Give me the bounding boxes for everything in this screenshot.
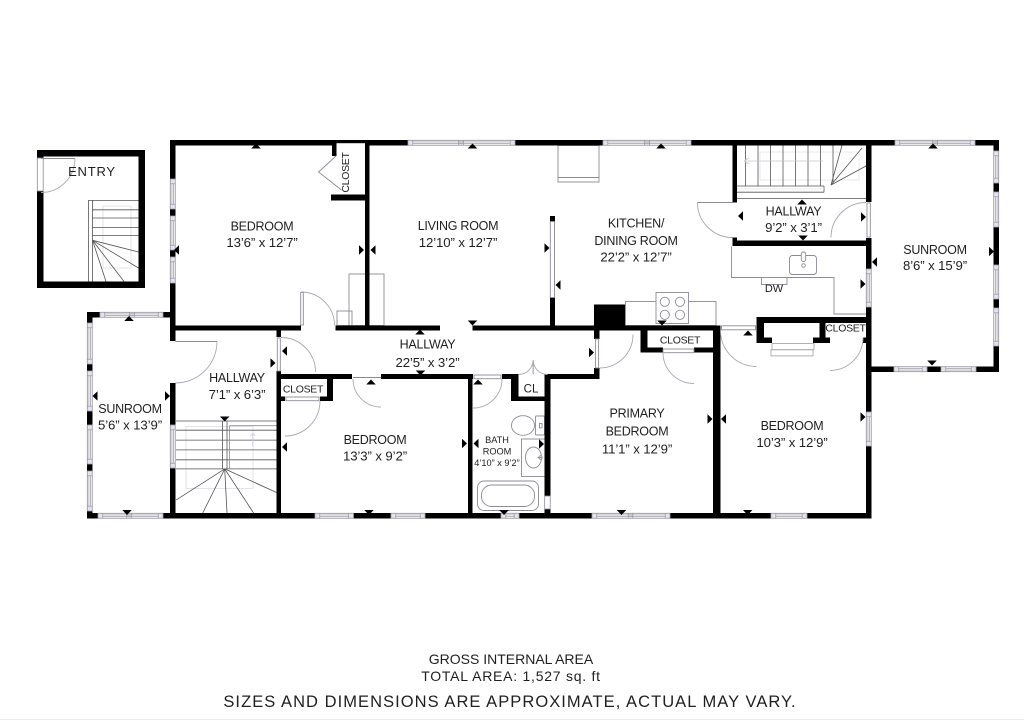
svg-text:4’10” x 9’2”: 4’10” x 9’2” (474, 458, 519, 468)
svg-text:DINING ROOM: DINING ROOM (594, 234, 677, 248)
svg-text:13’3” x 9’2”: 13’3” x 9’2” (343, 449, 407, 464)
svg-text:DW: DW (765, 283, 784, 295)
svg-text:CLOSET: CLOSET (283, 384, 324, 396)
svg-text:SUNROOM: SUNROOM (903, 243, 967, 257)
svg-text:CL: CL (524, 384, 539, 396)
svg-text:TOTAL AREA: 1,527 sq. ft: TOTAL AREA: 1,527 sq. ft (421, 668, 601, 684)
svg-text:CLOSET: CLOSET (825, 323, 866, 335)
svg-text:HALLWAY: HALLWAY (400, 338, 457, 352)
svg-text:PRIMARY: PRIMARY (610, 407, 666, 421)
svg-text:BEDROOM: BEDROOM (344, 433, 407, 447)
svg-text:22’5” x 3’2”: 22’5” x 3’2” (395, 355, 459, 370)
svg-text:HALLWAY: HALLWAY (209, 371, 266, 385)
svg-text:BEDROOM: BEDROOM (606, 425, 669, 439)
svg-text:9’2” x 3’1”: 9’2” x 3’1” (765, 220, 822, 235)
svg-text:HALLWAY: HALLWAY (766, 205, 823, 219)
svg-text:22’2” x 12’7”: 22’2” x 12’7” (600, 250, 671, 265)
svg-text:10’3” x 12’9”: 10’3” x 12’9” (756, 435, 827, 450)
svg-text:12’10” x 12’7”: 12’10” x 12’7” (419, 235, 498, 250)
svg-text:ENTRY: ENTRY (68, 164, 116, 179)
svg-text:BATH: BATH (485, 435, 509, 445)
svg-text:BEDROOM: BEDROOM (761, 419, 824, 433)
svg-text:7’1” x 6’3”: 7’1” x 6’3” (209, 387, 266, 402)
svg-text:KITCHEN/: KITCHEN/ (608, 217, 665, 231)
svg-text:13’6” x 12’7”: 13’6” x 12’7” (226, 235, 297, 250)
svg-text:8’6” x 15’9”: 8’6” x 15’9” (903, 258, 967, 273)
svg-text:5’6” x 13’9”: 5’6” x 13’9” (98, 418, 162, 433)
svg-text:CLOSET: CLOSET (340, 152, 352, 193)
svg-text:ROOM: ROOM (483, 447, 512, 457)
svg-text:CLOSET: CLOSET (660, 335, 701, 347)
svg-text:11’1” x 12’9”: 11’1” x 12’9” (602, 442, 672, 457)
svg-text:BEDROOM: BEDROOM (231, 220, 294, 234)
svg-text:SIZES AND DIMENSIONS ARE APPRO: SIZES AND DIMENSIONS ARE APPROXIMATE, AC… (223, 693, 796, 711)
svg-text:LIVING ROOM: LIVING ROOM (418, 219, 499, 233)
svg-text:SUNROOM: SUNROOM (98, 402, 162, 416)
svg-text:GROSS INTERNAL AREA: GROSS INTERNAL AREA (429, 651, 594, 667)
